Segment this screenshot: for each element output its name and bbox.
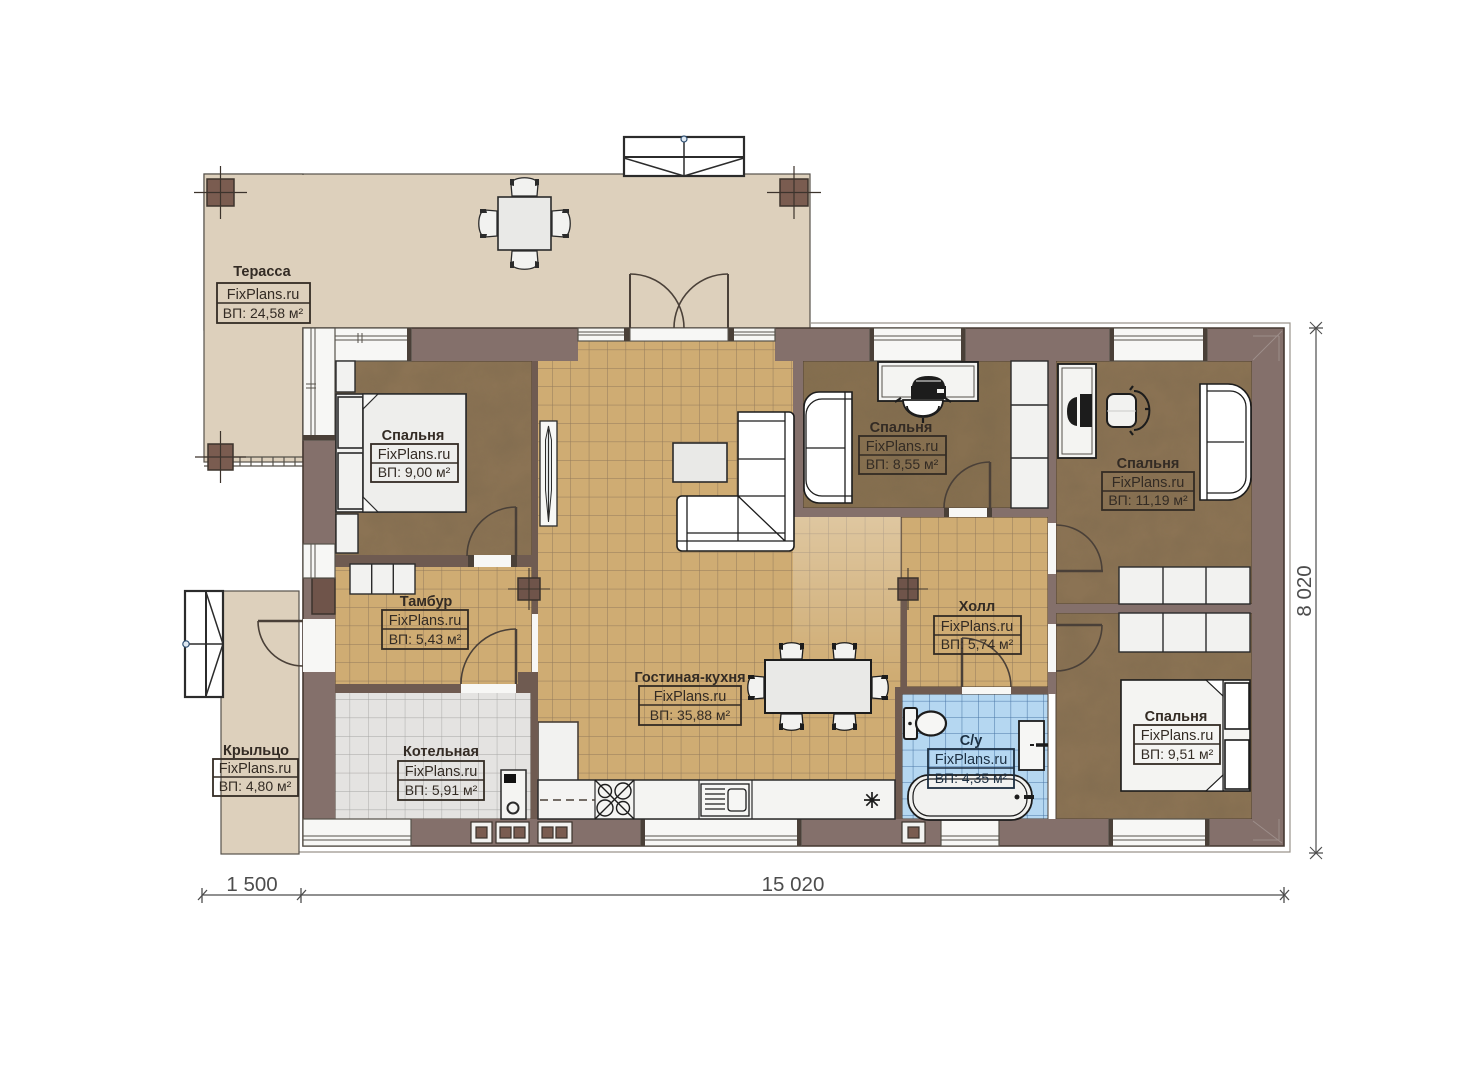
svg-text:FixPlans.ru: FixPlans.ru xyxy=(654,689,727,705)
svg-text:ВП: 11,19 м²: ВП: 11,19 м² xyxy=(1108,492,1188,508)
svg-text:ВП: 4,80 м²: ВП: 4,80 м² xyxy=(219,778,292,794)
svg-text:FixPlans.ru: FixPlans.ru xyxy=(941,619,1014,635)
svg-text:ВП: 8,55 м²: ВП: 8,55 м² xyxy=(866,456,939,472)
svg-text:ВП: 9,51 м²: ВП: 9,51 м² xyxy=(1141,746,1214,762)
svg-text:Гостиная-кухня: Гостиная-кухня xyxy=(634,670,745,686)
svg-text:Спальня: Спальня xyxy=(382,428,445,444)
svg-text:Котельная: Котельная xyxy=(403,744,479,760)
svg-text:FixPlans.ru: FixPlans.ru xyxy=(378,447,451,463)
svg-text:FixPlans.ru: FixPlans.ru xyxy=(219,761,292,777)
svg-text:ВП: 35,88 м²: ВП: 35,88 м² xyxy=(650,707,731,723)
svg-text:Спальня: Спальня xyxy=(1145,709,1208,725)
svg-text:15 020: 15 020 xyxy=(762,873,825,896)
svg-text:Терасса: Терасса xyxy=(233,264,291,280)
svg-text:FixPlans.ru: FixPlans.ru xyxy=(1141,728,1214,744)
svg-text:Спальня: Спальня xyxy=(1117,456,1180,472)
svg-text:ВП: 9,00 м²: ВП: 9,00 м² xyxy=(378,464,451,480)
svg-text:Тамбур: Тамбур xyxy=(400,594,453,610)
svg-text:ВП: 5,74 м²: ВП: 5,74 м² xyxy=(941,636,1014,652)
svg-text:ВП: 4,35 м²: ВП: 4,35 м² xyxy=(935,770,1008,786)
svg-text:FixPlans.ru: FixPlans.ru xyxy=(405,764,478,780)
svg-text:ВП: 24,58 м²: ВП: 24,58 м² xyxy=(223,305,304,321)
svg-text:ВП: 5,43 м²: ВП: 5,43 м² xyxy=(389,631,462,647)
svg-text:1 500: 1 500 xyxy=(226,873,277,896)
svg-text:FixPlans.ru: FixPlans.ru xyxy=(227,287,300,303)
svg-text:Крыльцо: Крыльцо xyxy=(223,743,289,759)
svg-text:Спальня: Спальня xyxy=(870,420,933,436)
svg-text:FixPlans.ru: FixPlans.ru xyxy=(389,613,462,629)
svg-text:ВП: 5,91 м²: ВП: 5,91 м² xyxy=(405,782,478,798)
svg-text:Холл: Холл xyxy=(959,599,995,615)
svg-text:FixPlans.ru: FixPlans.ru xyxy=(935,752,1008,768)
svg-text:8 020: 8 020 xyxy=(1293,565,1316,616)
svg-text:FixPlans.ru: FixPlans.ru xyxy=(1112,475,1185,491)
svg-text:С/у: С/у xyxy=(960,733,983,749)
svg-text:FixPlans.ru: FixPlans.ru xyxy=(866,439,939,455)
